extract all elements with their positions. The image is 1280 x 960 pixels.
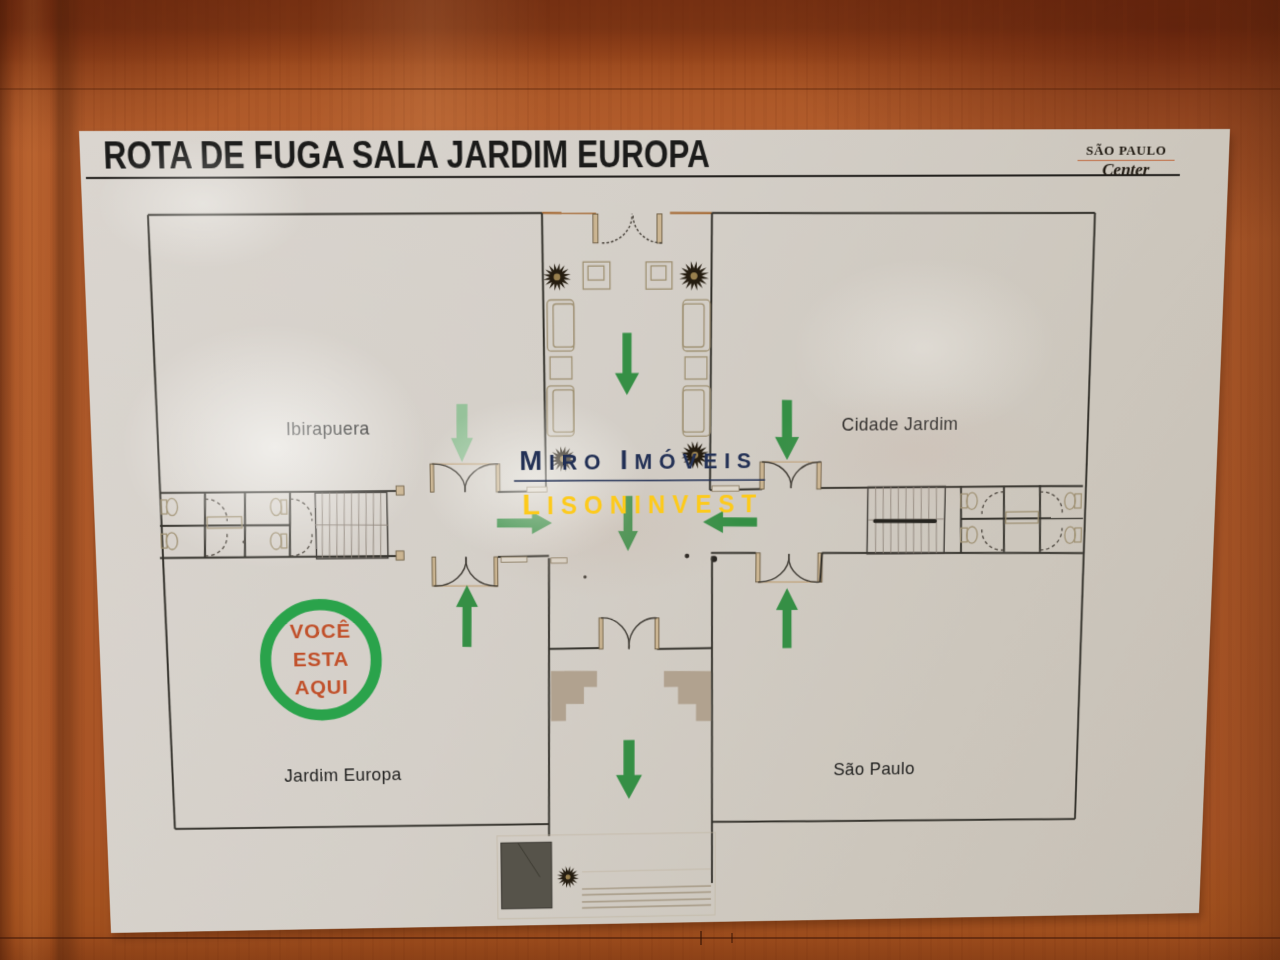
svg-text:LISONINVEST: LISONINVEST bbox=[522, 485, 763, 520]
svg-text:MIRO IMÓVEIS: MIRO IMÓVEIS bbox=[519, 444, 758, 477]
